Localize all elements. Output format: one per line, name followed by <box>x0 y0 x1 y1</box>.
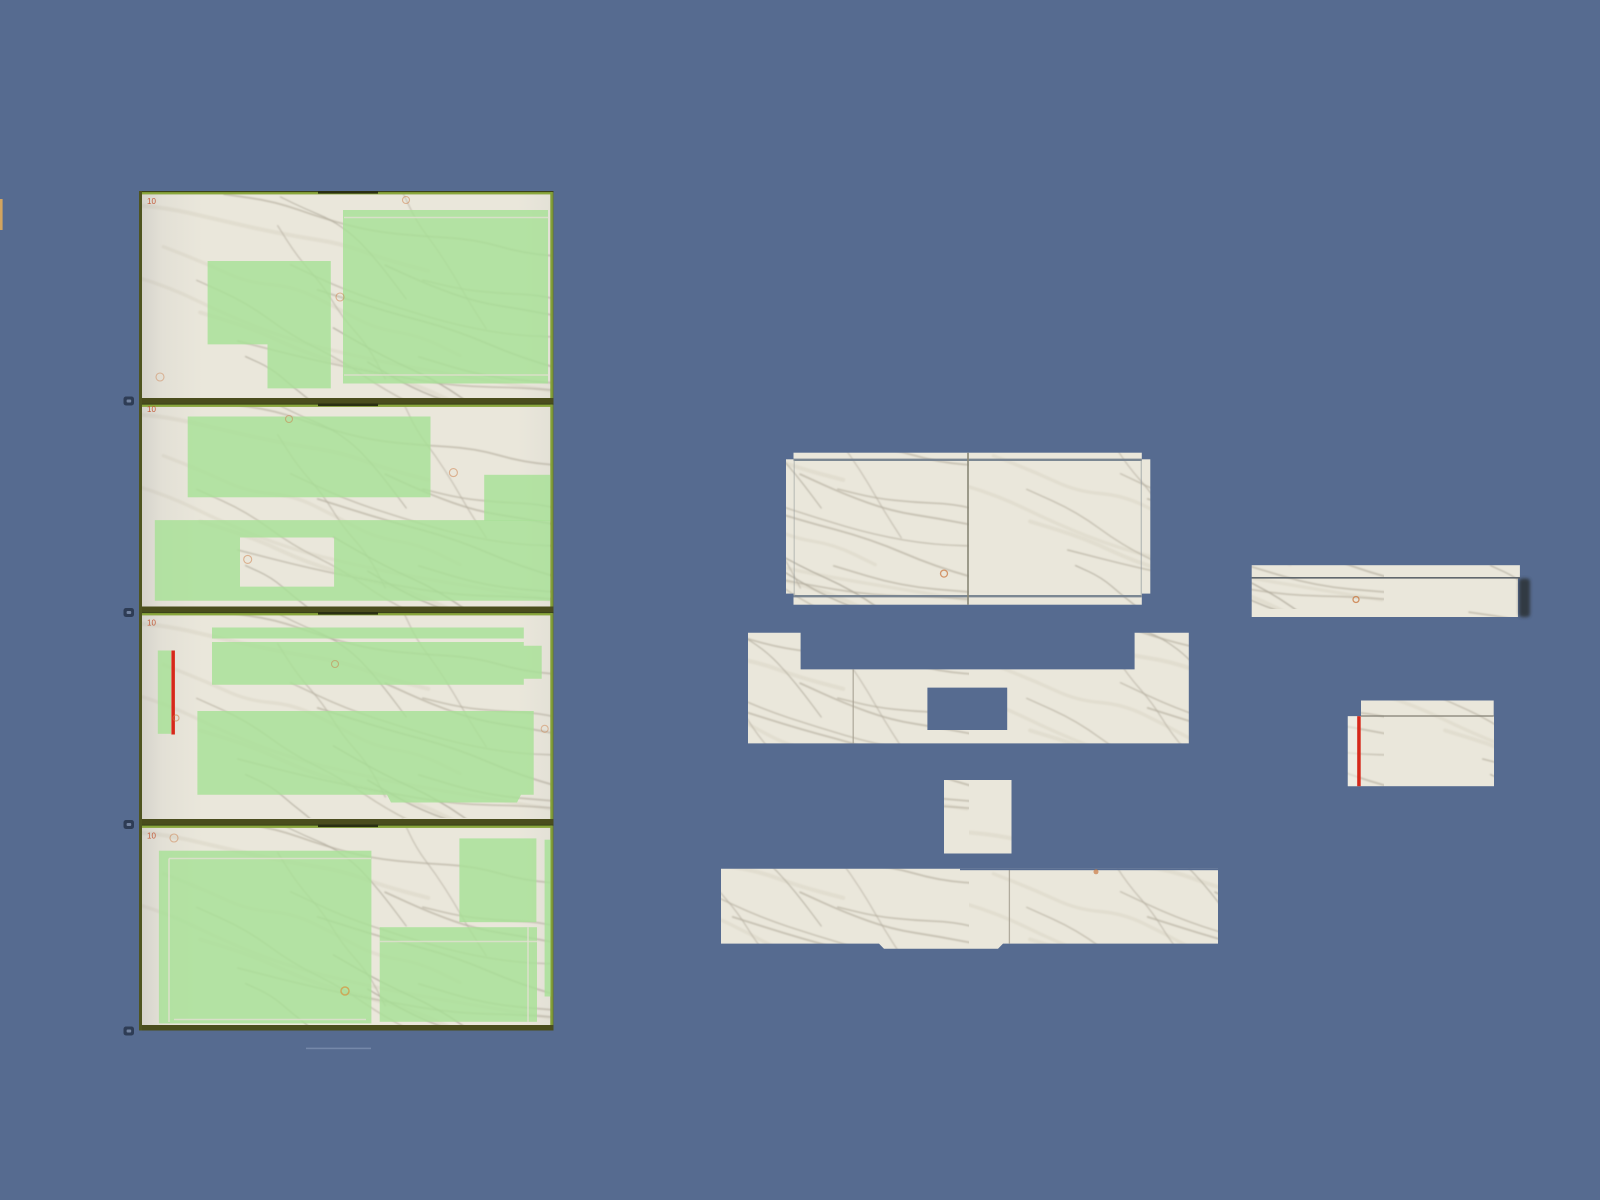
svg-text:10: 10 <box>147 197 156 206</box>
svg-text:10: 10 <box>147 619 156 628</box>
svg-text:10: 10 <box>147 405 156 414</box>
svg-text:10: 10 <box>147 832 156 841</box>
